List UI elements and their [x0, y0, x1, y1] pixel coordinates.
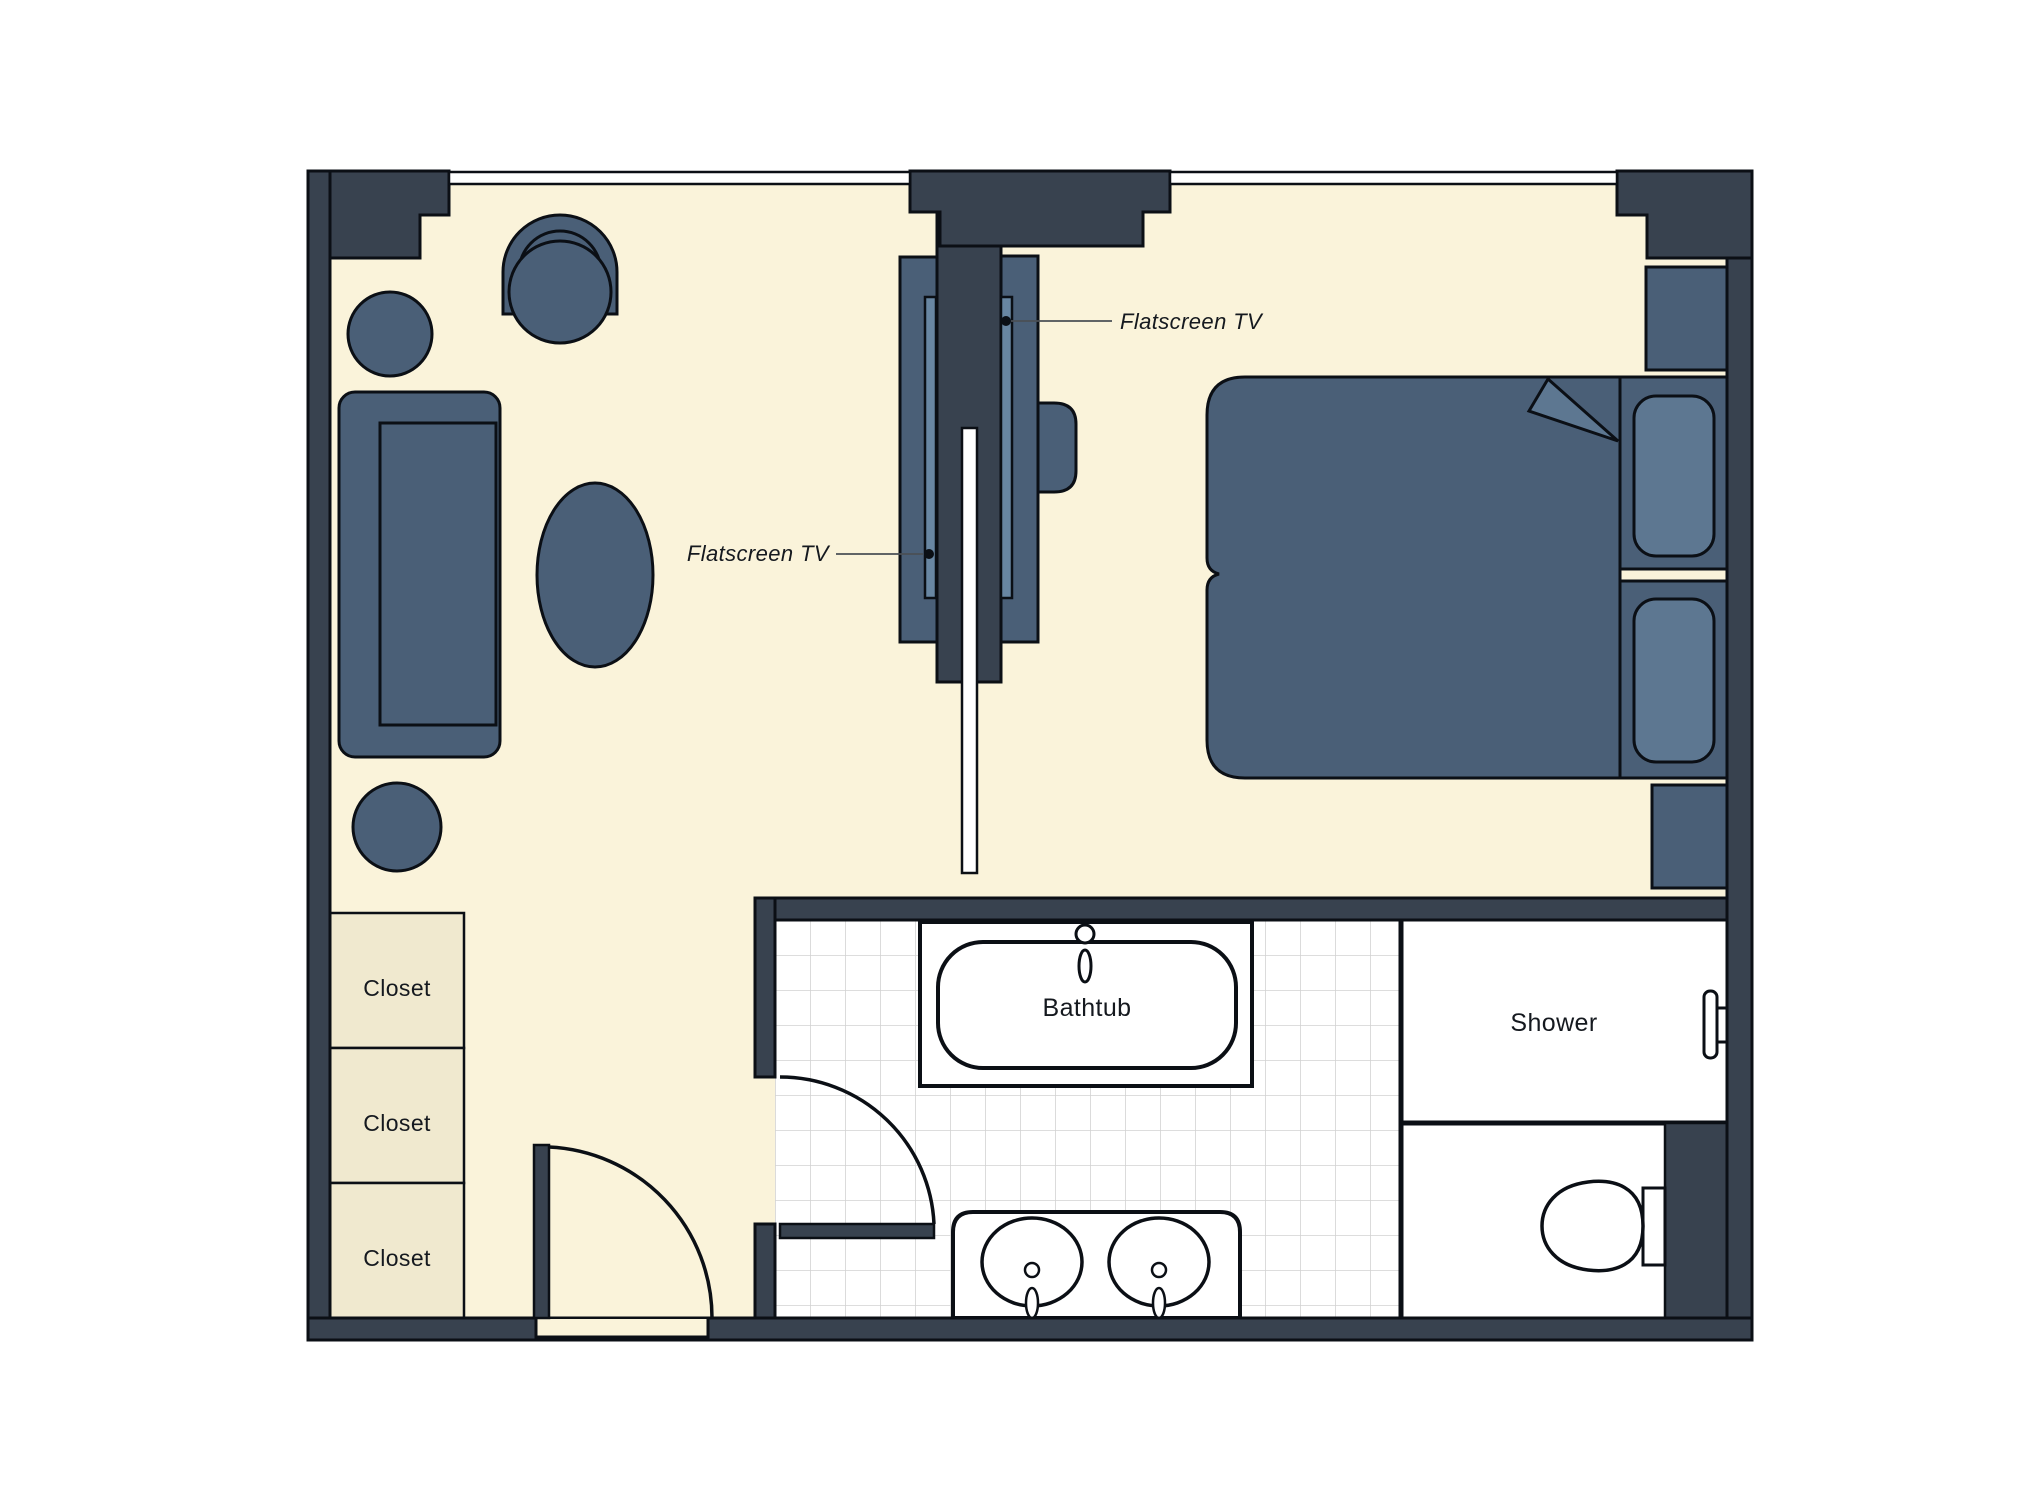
flatscreen-tv-bedroom	[1001, 297, 1012, 598]
wall-bathroom-left-lower	[755, 1224, 775, 1318]
sink-left-drain	[1025, 1263, 1039, 1277]
bathtub-faucet-knob	[1076, 925, 1094, 943]
sofa-seat	[380, 423, 496, 725]
window-bedroom	[1170, 172, 1617, 184]
side-table-bottom	[353, 783, 441, 871]
tv-bedroom-label: Flatscreen TV	[1120, 309, 1264, 334]
wall-bottom	[308, 1318, 1752, 1340]
closet-3-label: Closet	[363, 1245, 431, 1271]
pillow-bottom	[1634, 599, 1714, 762]
armchair	[503, 215, 617, 343]
sink-right-drain	[1152, 1263, 1166, 1277]
nightstand-bottom	[1652, 785, 1727, 888]
wall-left	[308, 171, 330, 1340]
callout-dot-bedroom-tv	[1001, 316, 1011, 326]
toilet-corner-wall	[1665, 1123, 1727, 1318]
sliding-pocket-door	[962, 428, 977, 873]
closet-1-label: Closet	[363, 975, 431, 1001]
floor-plan-page: Closet Closet Closet Bathtub Shower Flat…	[0, 0, 2036, 1500]
side-table-top	[348, 292, 432, 376]
bathtub-label: Bathtub	[1043, 994, 1132, 1022]
nightstand-top	[1646, 267, 1727, 370]
bathtub-faucet-handle	[1079, 950, 1091, 982]
sofa	[339, 392, 500, 757]
media-shelf	[1038, 403, 1076, 492]
wall-right	[1727, 171, 1752, 1340]
sink-left-faucet	[1026, 1288, 1038, 1318]
shower-label: Shower	[1510, 1009, 1597, 1037]
entry-threshold	[536, 1319, 708, 1338]
entry-door-leaf	[534, 1145, 549, 1318]
oval-coffee-table	[537, 483, 653, 667]
callout-dot-living-tv	[924, 549, 934, 559]
shower-door-handle	[1704, 991, 1717, 1058]
toilet-bowl	[1542, 1181, 1643, 1270]
window-living-room	[449, 172, 910, 184]
floor-plan-svg: Closet Closet Closet Bathtub Shower Flat…	[0, 0, 2036, 1500]
armchair-seat	[509, 241, 611, 343]
closet-2-label: Closet	[363, 1110, 431, 1136]
wall-top-center	[910, 171, 1170, 246]
bathroom-door-leaf	[780, 1224, 934, 1238]
wall-bathroom-left-upper	[755, 898, 775, 1077]
sink-right-faucet	[1153, 1288, 1165, 1318]
bed-mattress	[1207, 377, 1620, 778]
pillow-top	[1634, 396, 1714, 556]
wall-bathroom-top	[755, 898, 1727, 920]
tv-living-label: Flatscreen TV	[687, 541, 831, 566]
toilet-tank	[1643, 1188, 1665, 1265]
